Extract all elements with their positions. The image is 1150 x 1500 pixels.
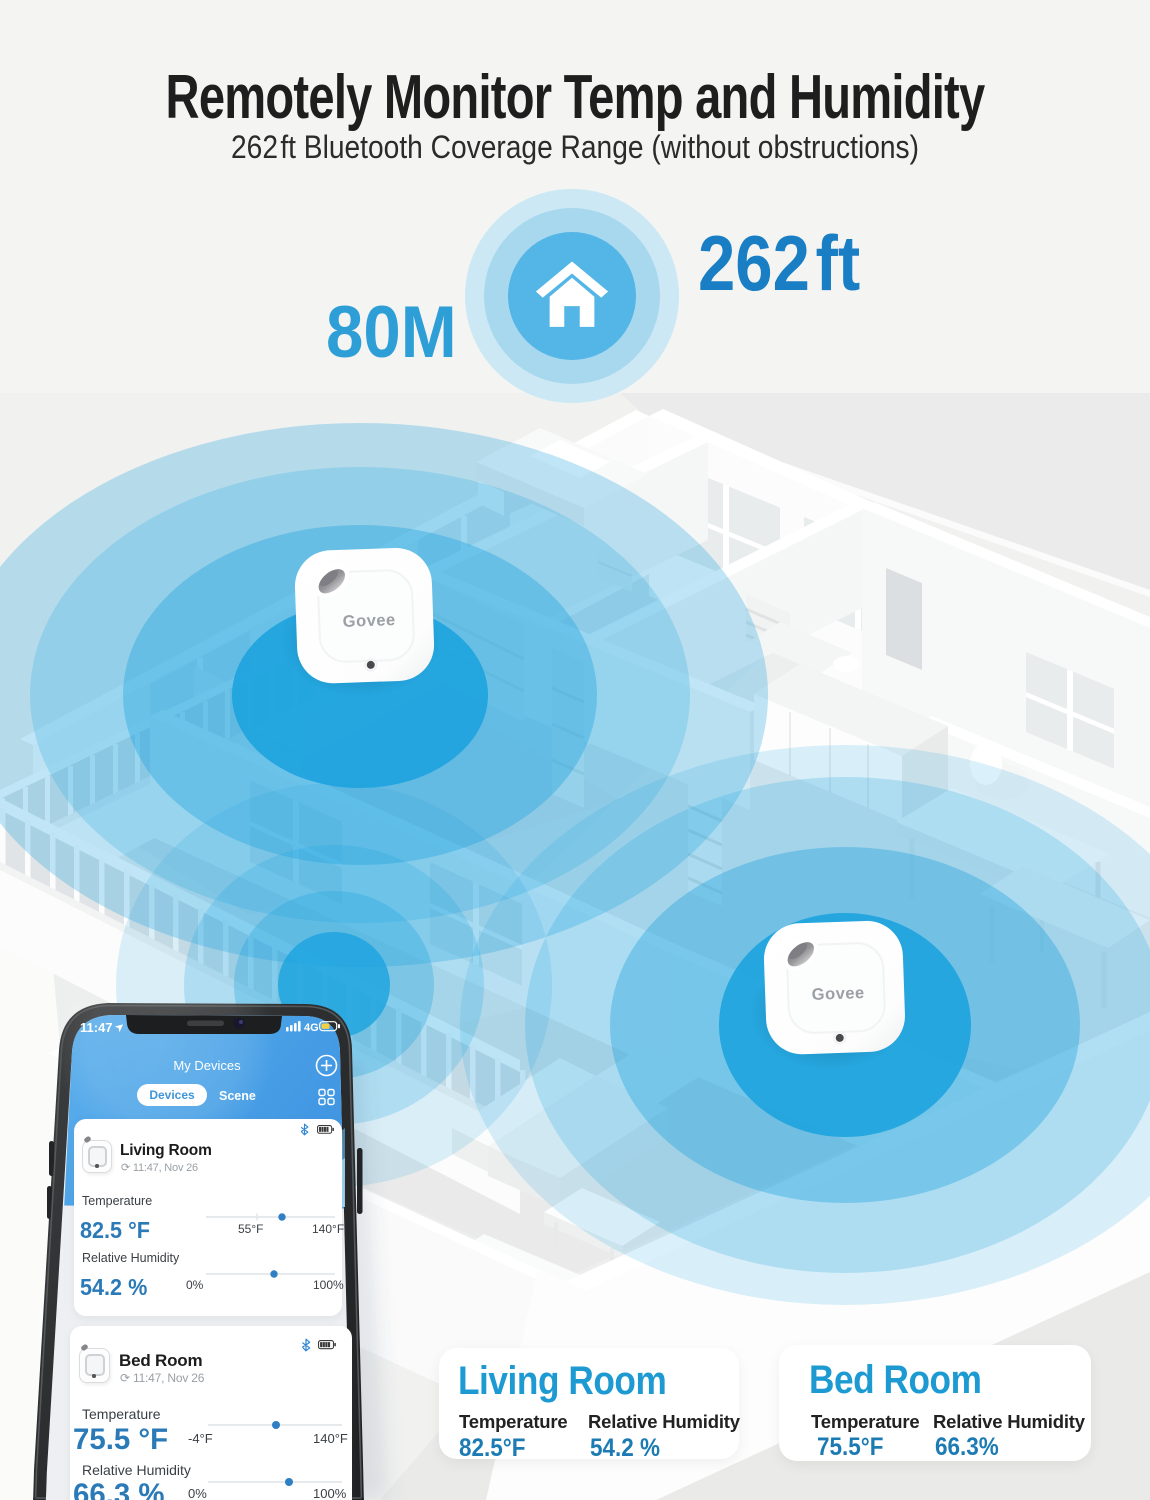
svg-text:Govee: Govee <box>811 984 865 1004</box>
svg-text:Govee: Govee <box>342 611 396 631</box>
